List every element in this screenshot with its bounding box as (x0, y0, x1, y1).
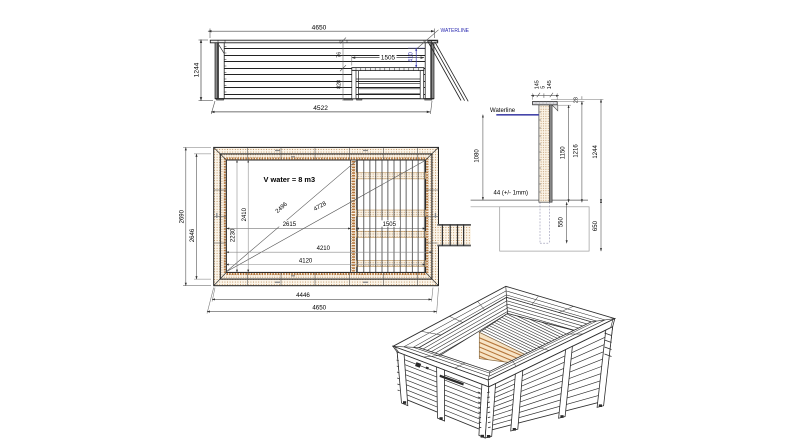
svg-text:Waterline: Waterline (490, 108, 516, 114)
svg-text:2690: 2690 (179, 209, 185, 223)
svg-text:1244: 1244 (593, 145, 599, 159)
svg-text:4120: 4120 (299, 258, 313, 264)
svg-text:828: 828 (336, 80, 342, 89)
svg-text:2230: 2230 (231, 228, 237, 242)
svg-text:410: 410 (409, 52, 415, 63)
svg-text:1505: 1505 (381, 55, 396, 62)
svg-text:1244: 1244 (194, 62, 201, 77)
svg-text:550: 550 (559, 217, 565, 228)
svg-text:5: 5 (541, 86, 547, 89)
svg-text:1150: 1150 (560, 146, 566, 160)
svg-text:650: 650 (593, 220, 599, 231)
svg-text:4210: 4210 (317, 246, 331, 252)
svg-text:76: 76 (336, 52, 342, 58)
svg-text:1216: 1216 (574, 144, 580, 158)
svg-text:1505: 1505 (383, 222, 397, 228)
svg-text:28: 28 (573, 97, 579, 103)
svg-text:1080: 1080 (475, 149, 481, 163)
svg-text:44 (+/- 1mm): 44 (+/- 1mm) (494, 191, 529, 197)
svg-text:145: 145 (547, 80, 553, 89)
svg-text:WATERLINE: WATERLINE (441, 28, 470, 34)
svg-text:2410: 2410 (242, 207, 248, 221)
svg-text:145: 145 (534, 80, 540, 89)
svg-text:4650: 4650 (312, 304, 326, 311)
svg-text:V water = 8 m3: V water = 8 m3 (264, 175, 316, 184)
svg-text:4522: 4522 (313, 105, 328, 112)
svg-text:4650: 4650 (312, 25, 327, 32)
svg-text:2615: 2615 (283, 222, 297, 228)
svg-text:4446: 4446 (296, 292, 310, 299)
svg-text:2646: 2646 (190, 228, 196, 242)
